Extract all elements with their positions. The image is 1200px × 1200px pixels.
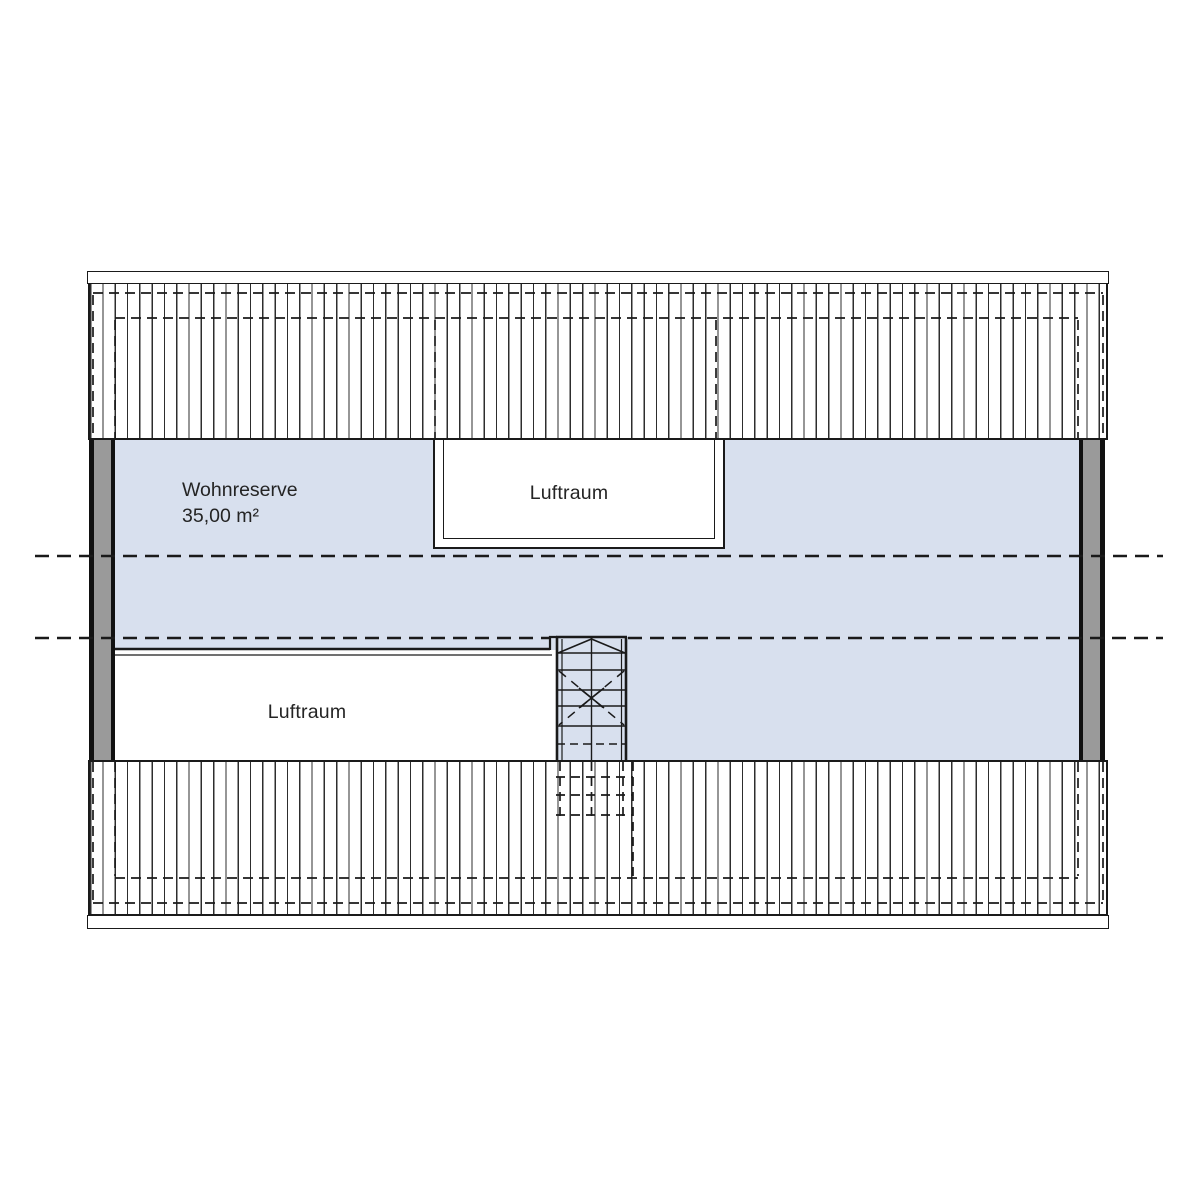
hidden-outline-bottom-band xyxy=(93,762,1103,903)
plan-linework xyxy=(0,0,1200,1200)
gallery-edge xyxy=(115,637,557,655)
floor-plan: Luftraum Luftraum Wohnreserve 35,00 m² xyxy=(0,0,1200,1200)
hidden-outline-top-band xyxy=(93,293,1103,438)
staircase xyxy=(556,637,627,760)
staircase-hidden-continuation xyxy=(556,762,633,876)
